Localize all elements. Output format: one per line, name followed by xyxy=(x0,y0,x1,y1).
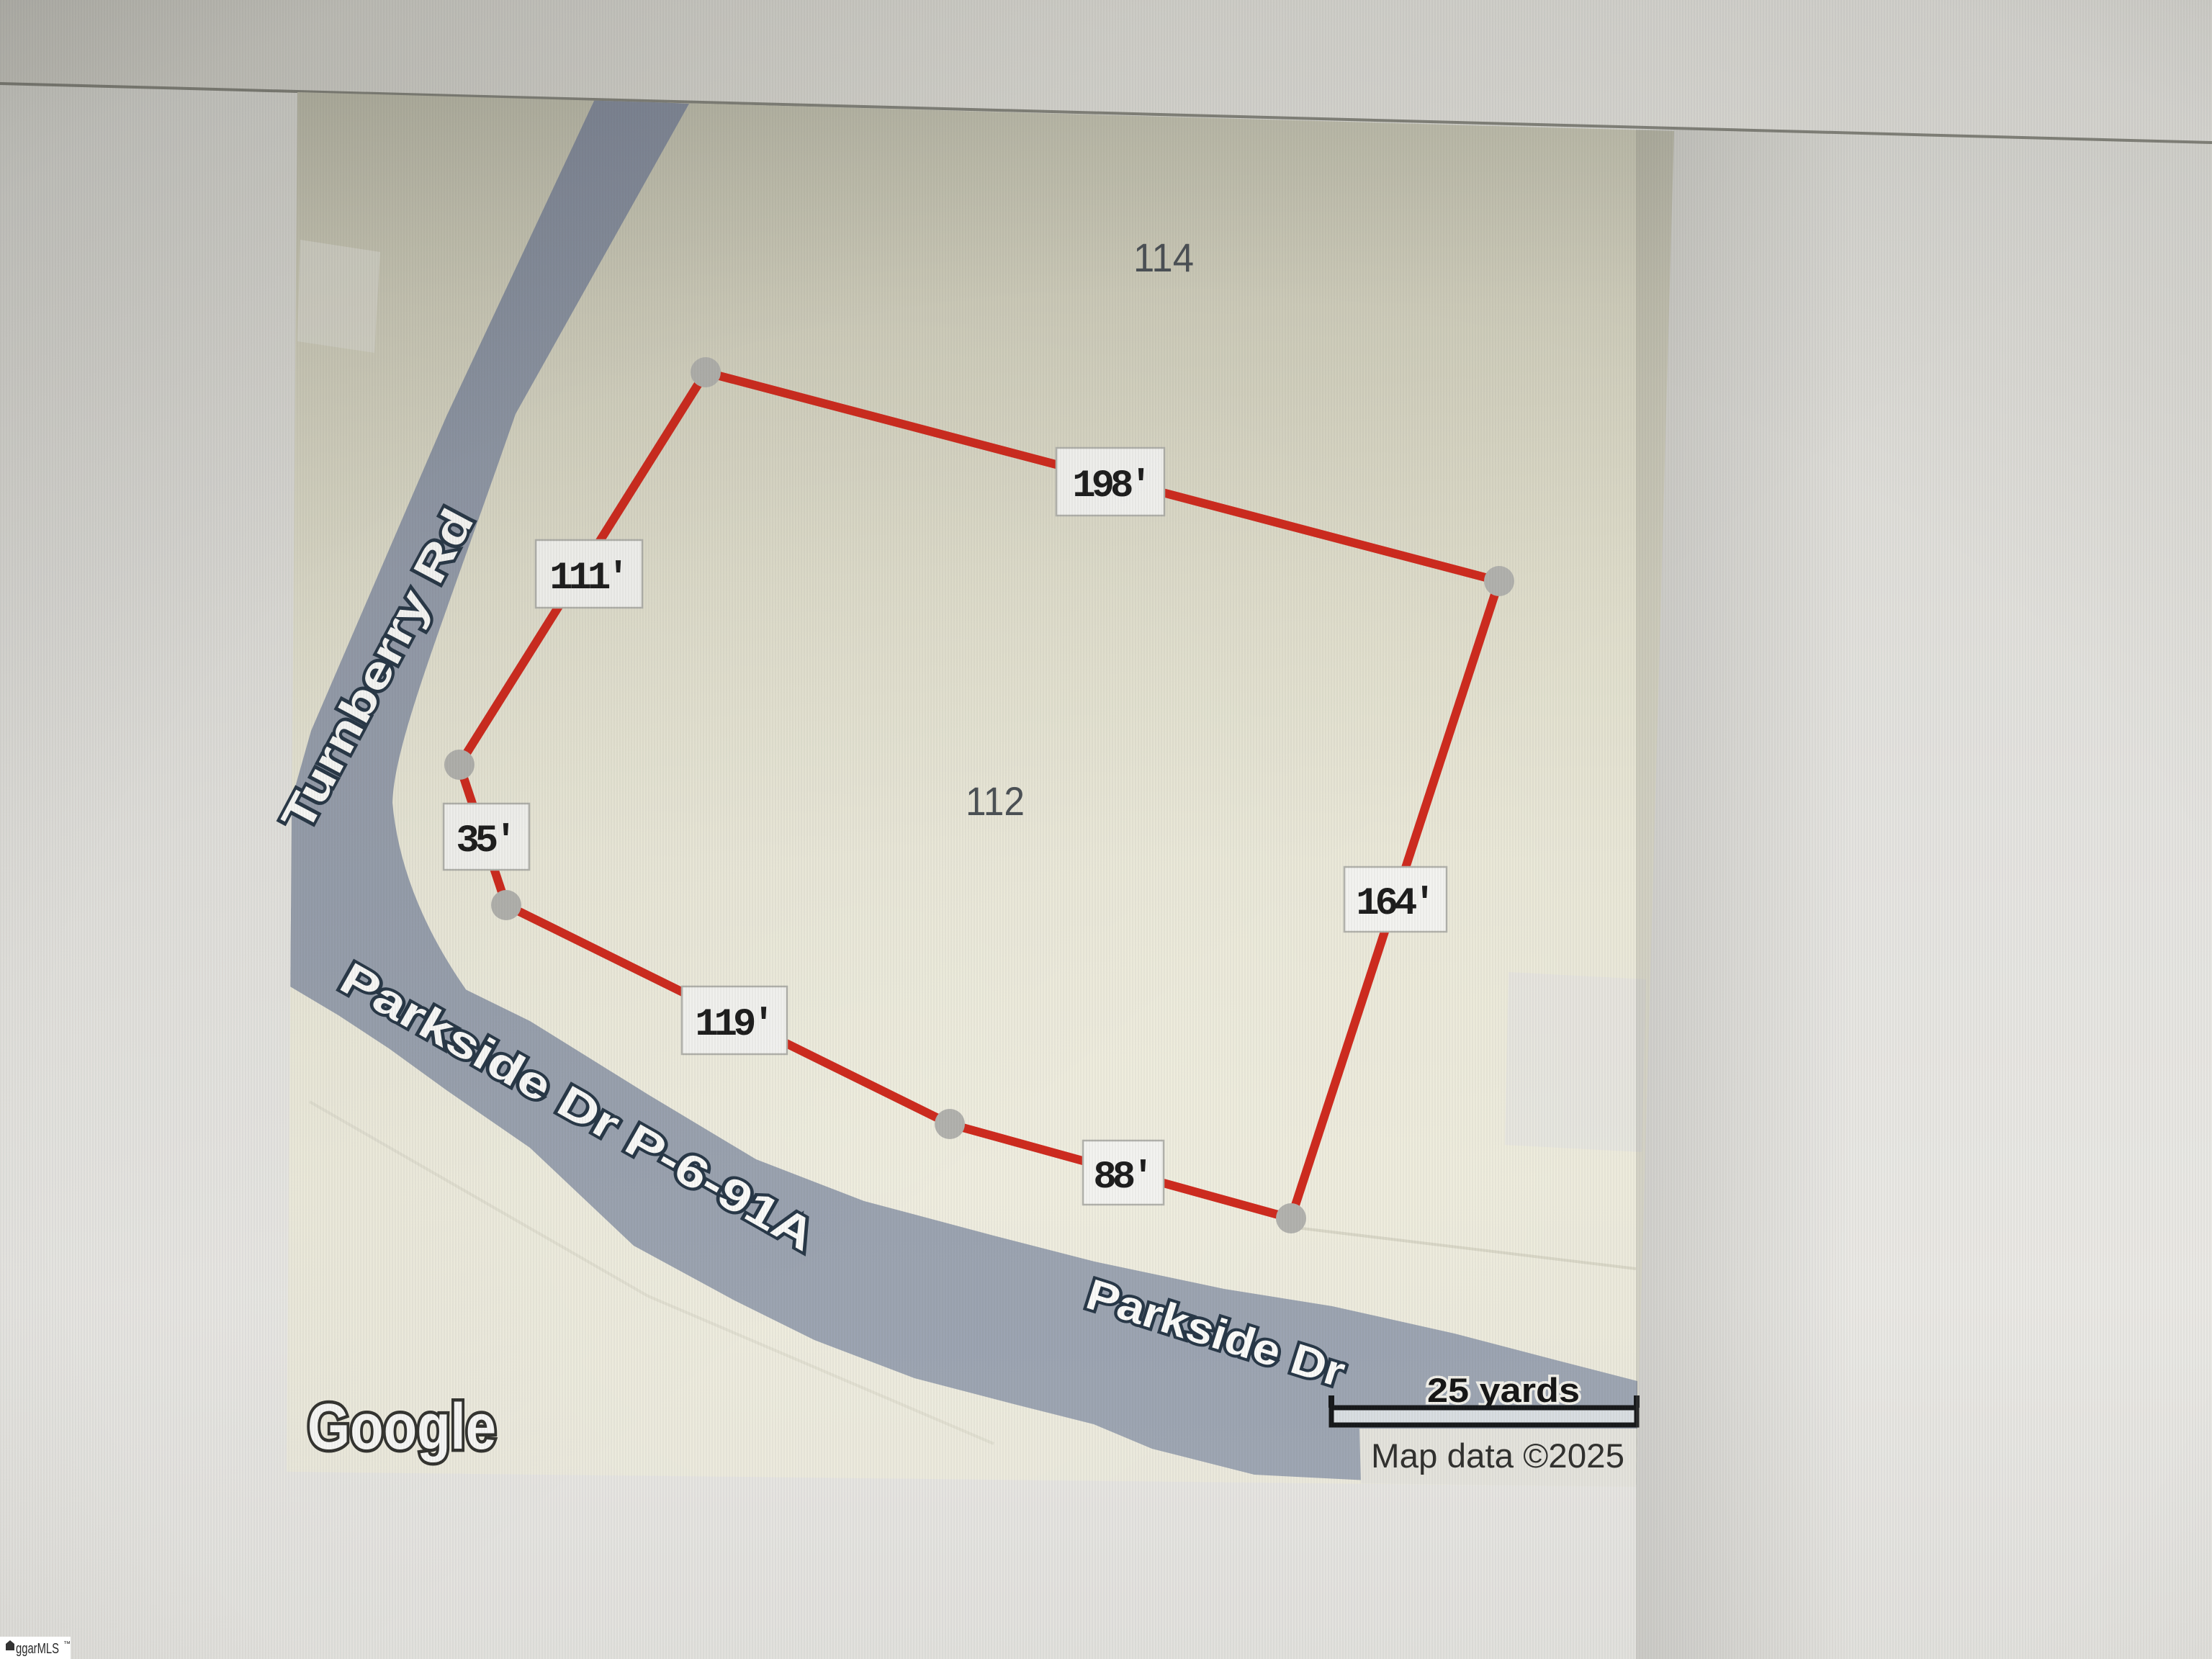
svg-text:™: ™ xyxy=(63,1640,71,1648)
svg-text:ggarMLS: ggarMLS xyxy=(16,1641,59,1657)
